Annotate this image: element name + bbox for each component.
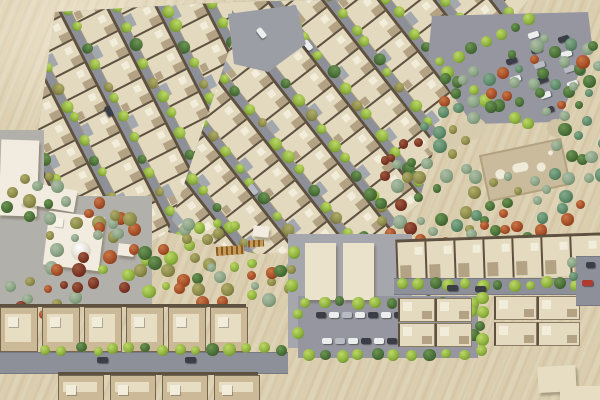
tree [24, 211, 35, 222]
tree [70, 217, 83, 230]
tree [352, 349, 362, 359]
tree [40, 345, 50, 355]
tree [430, 277, 442, 289]
tree [293, 309, 303, 319]
house-unit [511, 237, 543, 277]
tree [194, 222, 206, 234]
tree [320, 350, 330, 360]
courtyard [516, 261, 527, 275]
roof-cube [444, 246, 452, 254]
tree [230, 262, 239, 271]
tree [50, 243, 64, 257]
roof-cube [176, 317, 186, 327]
courtyard [567, 335, 577, 343]
tree [72, 263, 86, 277]
tree [51, 180, 64, 193]
tree [32, 181, 42, 191]
tree [460, 278, 470, 288]
roof-cube [92, 317, 102, 327]
car [355, 312, 365, 318]
roof-cube [8, 317, 18, 327]
tree [44, 212, 56, 224]
roof-cube [499, 326, 508, 335]
roof-cube [403, 302, 412, 311]
roof-cube [440, 302, 449, 311]
car [368, 312, 378, 318]
car [374, 338, 384, 344]
tree [182, 234, 192, 244]
courtyard [524, 335, 534, 343]
kiosk-building [252, 225, 269, 238]
courtyard [422, 311, 432, 319]
tree [300, 298, 310, 308]
tree [161, 264, 175, 278]
house-unit [110, 375, 156, 400]
tree [397, 278, 408, 289]
tree [352, 297, 365, 310]
house-unit [540, 236, 572, 276]
tree [372, 348, 384, 360]
tree [20, 174, 30, 184]
tree [221, 283, 234, 296]
car [381, 312, 391, 318]
house-unit [398, 323, 435, 347]
courtyard [545, 260, 556, 274]
tree [44, 285, 52, 293]
tree [60, 281, 68, 289]
car [447, 285, 458, 291]
house-unit [398, 298, 435, 322]
tree [213, 219, 223, 229]
courtyard [459, 311, 469, 319]
car [387, 338, 397, 344]
tree [213, 228, 224, 239]
tree [84, 209, 94, 219]
tree [122, 269, 134, 281]
tree [23, 194, 37, 208]
roof-cube [134, 317, 144, 327]
tree [103, 250, 117, 264]
roof-cube [415, 247, 423, 255]
house-unit [537, 322, 580, 346]
tree [45, 172, 54, 181]
tree [247, 271, 256, 280]
tree [69, 291, 82, 304]
tree [493, 280, 502, 289]
car [329, 312, 339, 318]
courtyard [459, 336, 469, 344]
car [185, 357, 196, 363]
tree [192, 283, 205, 296]
tree [5, 281, 16, 292]
house-unit [494, 296, 537, 320]
tree [423, 349, 435, 361]
apartment-building [305, 243, 336, 300]
car [335, 338, 345, 344]
house-slab [560, 386, 600, 400]
house-unit [537, 296, 580, 320]
tree [94, 347, 103, 356]
tree [148, 256, 162, 270]
tree [214, 271, 226, 283]
house-unit [482, 238, 514, 278]
car [582, 280, 593, 286]
tree [51, 264, 63, 276]
roof-cube [118, 385, 128, 395]
tree [476, 292, 488, 304]
tree [142, 285, 155, 298]
tree [98, 265, 107, 274]
tree [94, 197, 106, 209]
roof-cube [501, 244, 509, 252]
pergola [248, 239, 264, 247]
roof-cube [66, 385, 76, 395]
tree [72, 282, 83, 293]
house-unit [435, 298, 472, 322]
roof-cube [50, 317, 60, 327]
house-unit [162, 375, 208, 400]
tree [303, 349, 315, 361]
tree [123, 212, 137, 226]
house-unit [0, 307, 38, 352]
courtyard [422, 336, 432, 344]
tree [337, 350, 349, 362]
tree [567, 257, 577, 267]
roof-cube [542, 300, 551, 309]
tree [207, 263, 217, 273]
tree [247, 259, 256, 268]
tree [202, 234, 213, 245]
tree [286, 279, 299, 292]
tree [230, 221, 240, 231]
tree [76, 342, 87, 353]
tree [335, 296, 344, 305]
housing-row-south-edge [58, 372, 258, 400]
tree [267, 278, 275, 286]
tree [509, 280, 521, 292]
tree [251, 282, 259, 290]
tree [25, 277, 34, 286]
tree [292, 327, 304, 339]
tree [134, 264, 146, 276]
tree [387, 298, 398, 309]
tree [459, 350, 470, 361]
tree [276, 345, 287, 356]
roof-cube [499, 300, 508, 309]
pergola [216, 245, 245, 256]
tree [262, 293, 276, 307]
tree [247, 290, 257, 300]
housing-cluster [494, 296, 580, 348]
tree [110, 210, 120, 220]
car [586, 262, 595, 268]
roof-cube [218, 317, 228, 327]
tree [61, 196, 71, 206]
tree [158, 244, 169, 255]
house-unit [494, 322, 537, 346]
courtyard [487, 262, 498, 276]
house-unit [435, 323, 472, 347]
tree [157, 345, 168, 356]
roof-cube [440, 327, 449, 336]
tree [477, 306, 489, 318]
apartment-building [343, 243, 374, 300]
car [97, 357, 108, 363]
tree [162, 282, 170, 290]
courtyard [458, 263, 469, 277]
roof-cube [403, 327, 412, 336]
tree [71, 234, 79, 242]
car [322, 338, 332, 344]
road-southwest [0, 352, 288, 374]
tree [119, 282, 130, 293]
house-unit [395, 242, 427, 282]
tree [88, 277, 99, 288]
roof-cube [559, 242, 567, 250]
house-unit [214, 375, 260, 400]
tree [175, 344, 186, 355]
roof-cube [530, 243, 538, 251]
car [475, 286, 486, 292]
courtyard [567, 309, 577, 317]
car [361, 338, 371, 344]
house-unit [453, 240, 485, 280]
roof-cube [588, 241, 596, 249]
housing-cluster [398, 298, 472, 348]
masterplan-render [0, 0, 600, 400]
tree [191, 346, 201, 356]
roof-cube [473, 245, 481, 253]
tree [475, 321, 485, 331]
house-unit [424, 241, 456, 281]
tree [140, 343, 150, 353]
car [342, 312, 352, 318]
roof-cube [170, 385, 180, 395]
courtyard [524, 309, 534, 317]
tree [93, 230, 103, 240]
tree [7, 187, 18, 198]
roof-cube [542, 326, 551, 335]
tree [44, 199, 54, 209]
tree [56, 346, 65, 355]
tree [123, 342, 134, 353]
tree [287, 265, 296, 274]
tree [182, 218, 195, 231]
tree [223, 343, 236, 356]
tree [46, 231, 54, 239]
roof-cube [222, 385, 232, 395]
car [348, 338, 358, 344]
tree [78, 252, 89, 263]
tree [1, 201, 13, 213]
car [316, 312, 326, 318]
house-unit [168, 307, 206, 352]
tree [190, 253, 200, 263]
tree [112, 228, 123, 239]
house-unit [58, 375, 104, 400]
tree [274, 265, 286, 277]
tree [174, 283, 184, 293]
